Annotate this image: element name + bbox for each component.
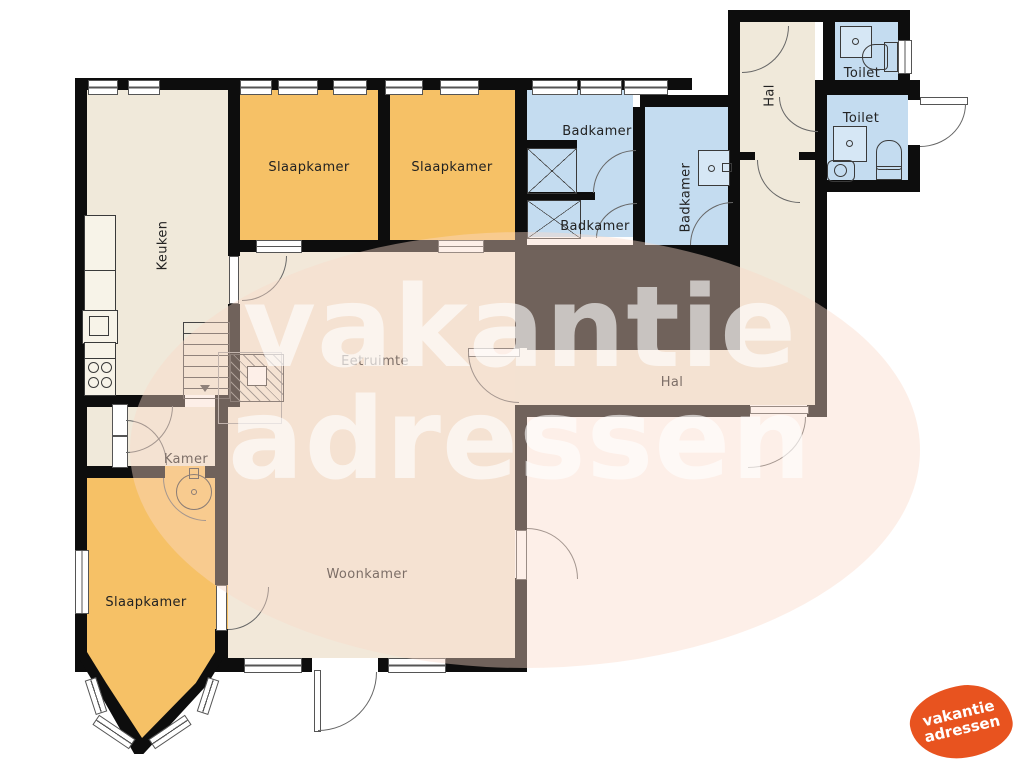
door-leaf [516,530,527,580]
window [128,80,160,95]
window [624,80,668,95]
stove-burner [101,362,112,373]
wall-topright-top [728,10,908,22]
vakantieadressen-logo: vakantie adressen [905,678,1017,765]
window [244,658,302,673]
wall-slaapkamer3-woonkamer [215,466,228,672]
window [333,80,367,95]
wall-keuken-slaapkamer1 [228,90,240,252]
door-arc [318,672,377,731]
boiler-dial [834,164,847,177]
door-threshold [438,240,484,253]
wall-badkamer3-top [640,95,740,107]
toilet-tank [884,42,898,72]
door-gap [595,192,633,200]
door-arc [748,417,806,468]
floorplan-canvas: Toilet Keuken Slaapkamer Slaapkamer Badk… [0,0,1024,768]
door-gap [312,658,378,672]
wall-shower-stub [527,140,577,148]
washbasin-drain [191,489,197,495]
door-arc [527,528,578,579]
toilet-sink-drain [846,140,853,147]
wall-hal-right [815,192,827,405]
label-toilet2: Toilet [826,111,896,126]
door-gap [755,152,799,160]
toilet-tank [876,166,902,180]
label-eetruimte: Eetruimte [305,354,445,369]
chimney-flue [247,366,267,386]
window [385,80,423,95]
washbasin-tap [189,468,199,479]
door-leaf [229,256,239,304]
door-gap [908,100,920,145]
kitchen-counter [84,215,116,272]
stove-burner [101,377,112,388]
label-woonkamer: Woonkamer [297,567,437,582]
stove-burner [88,377,99,388]
window [278,80,318,95]
label-keuken: Keuken [156,206,171,286]
window [388,658,446,673]
door-threshold [256,240,302,253]
door-leaf [216,585,227,631]
kitchen-sink-basin [89,316,109,336]
door-leaf [750,406,809,414]
stove-burner [88,362,99,373]
label-slaapkamer2: Slaapkamer [387,160,517,175]
label-hal1: Hal [763,56,778,136]
wall-topright-left [728,10,740,95]
wall-toilet1-bottom [815,80,920,95]
label-badkamer2: Badkamer [545,219,645,234]
wall-hal-toilet1 [823,22,835,80]
label-badkamer3: Badkamer [679,148,694,248]
label-slaapkamer3: Slaapkamer [81,595,211,610]
bathroom-sink-drain [708,165,715,172]
bathroom-sink-tap [722,163,732,172]
window [440,80,479,95]
stairs-arrow [200,385,210,392]
window [532,80,578,95]
window [88,80,118,95]
toilet-sink-drain [852,38,859,45]
floor-eetruimte-woonkamer [228,252,515,658]
door-arc [920,104,966,147]
label-badkamer1: Badkamer [547,124,647,139]
label-hal2: Hal [632,375,712,390]
void-area [515,245,740,350]
logo-text: vakantie adressen [920,698,1002,746]
label-kamer: Kamer [146,452,226,467]
label-slaapkamer1: Slaapkamer [244,160,374,175]
window [240,80,272,95]
window [580,80,622,95]
kitchen-counter [84,270,116,312]
shower [527,148,577,194]
window [898,40,912,74]
